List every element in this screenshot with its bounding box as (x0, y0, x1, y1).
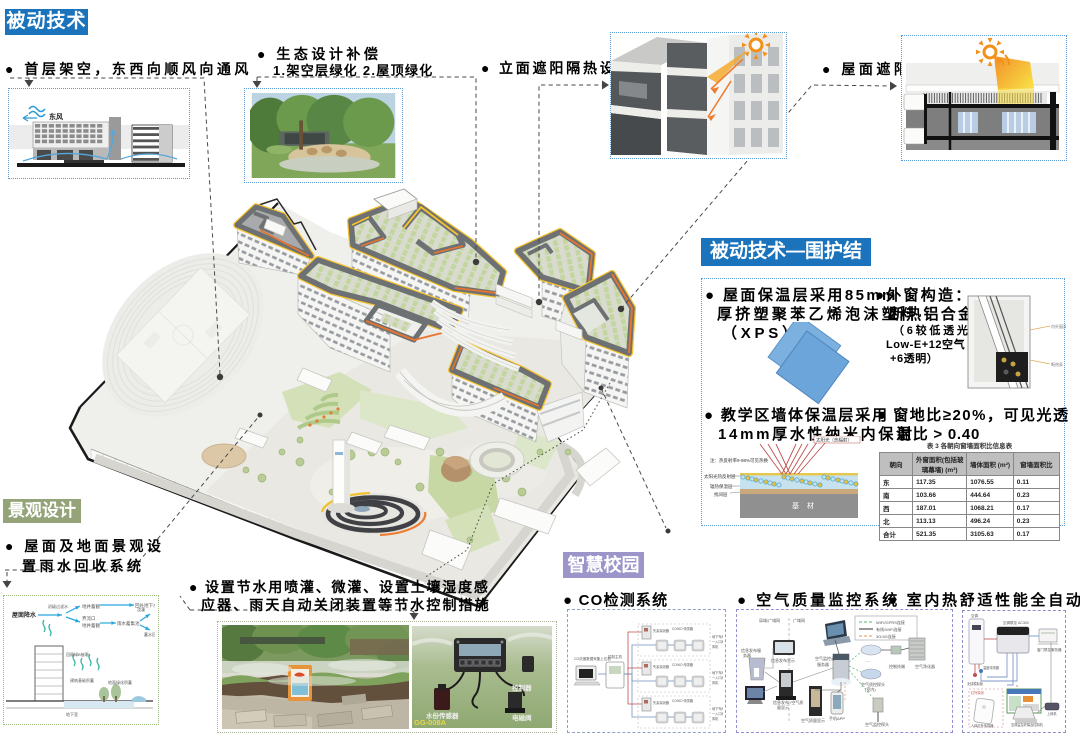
svg-text:上网机: 上网机 (1047, 711, 1057, 716)
svg-text:务器: 务器 (743, 652, 751, 658)
svg-text:CO/NO 传感器: CO/NO 传感器 (672, 698, 694, 703)
svg-text:GG-008A: GG-008A (414, 718, 447, 727)
svg-text:太阳光热反射层: 太阳光热反射层 (704, 473, 736, 480)
svg-text:空调: 空调 (971, 613, 979, 618)
svg-text:窗门联控服务器: 窗门联控服务器 (1037, 647, 1062, 652)
svg-text:地面绿化积蓄: 地面绿化积蓄 (108, 679, 132, 685)
svg-text:控制主机: 控制主机 (608, 654, 622, 659)
svg-text:雨水蓄集池: 雨水蓄集池 (117, 620, 140, 627)
svg-text:浇灌: 浇灌 (137, 606, 145, 612)
svg-text:内外窗双玻: 内外窗双玻 (1051, 323, 1066, 329)
svg-text:地井蓄観: 地井蓄観 (82, 603, 100, 610)
svg-text:断热条: 断热条 (1051, 361, 1063, 367)
svg-text:地下车库: 地下车库 (712, 706, 723, 711)
svg-text:3G/4G连接: 3G/4G连接 (876, 633, 896, 639)
svg-text:风机: 风机 (712, 644, 719, 649)
svg-text:地下室: 地下室 (66, 711, 78, 717)
svg-text:量显示: 量显示 (777, 704, 789, 710)
svg-text:控制终端: 控制终端 (889, 663, 905, 669)
svg-text:蓄水回補: 蓄水回補 (144, 631, 155, 637)
svg-text:东风: 东风 (49, 112, 63, 121)
svg-text:失素探测器: 失素探测器 (653, 628, 670, 633)
svg-text:空调联控 AC300: 空调联控 AC300 (1003, 620, 1029, 625)
svg-text:注：热反射率9-98%可见热换: 注：热反射率9-98%可见热换 (710, 457, 769, 464)
svg-text:回顾绿B被珊: 回顾绿B被珊 (66, 651, 89, 657)
svg-text:失素探测器: 失素探测器 (653, 700, 670, 705)
svg-text:地井蓄観: 地井蓄観 (82, 622, 100, 629)
svg-text:找间层: 找间层 (714, 491, 728, 498)
svg-text:一入口段: 一入口段 (712, 711, 723, 716)
svg-text:弃流口: 弃流口 (82, 615, 96, 622)
svg-text:人体红外传感器: 人体红外传感器 (971, 723, 994, 728)
svg-text:服务器: 服务器 (817, 661, 829, 667)
svg-text:空调监控终端及控制机: 空调监控终端及控制机 (1011, 722, 1044, 727)
svg-text:基 材: 基 材 (792, 501, 817, 510)
svg-text:电磁阀: 电磁阀 (512, 713, 532, 722)
svg-text:风机: 风机 (712, 716, 719, 721)
svg-text:失素探测器: 失素探测器 (653, 664, 670, 669)
svg-text:无线模拟板: 无线模拟板 (967, 681, 984, 686)
svg-text:CO/NO 传感器: CO/NO 传感器 (672, 626, 694, 631)
svg-text:一入口段: 一入口段 (712, 675, 723, 680)
svg-text:辐热保温层: 辐热保温层 (710, 483, 733, 490)
svg-text:地下车库: 地下车库 (712, 670, 723, 675)
svg-text:红外探测: 红外探测 (971, 690, 984, 695)
svg-text:(室内): (室内) (865, 686, 876, 692)
svg-text:控制器: 控制器 (512, 683, 532, 692)
svg-text:温度传感器: 温度传感器 (983, 665, 1000, 670)
svg-text:CO/NO 传感器: CO/NO 传感器 (672, 662, 694, 667)
svg-text:地下车库: 地下车库 (712, 634, 723, 639)
svg-text:空气净化器: 空气净化器 (915, 663, 935, 669)
svg-text:广域网: 广域网 (793, 617, 805, 623)
svg-text:WIFI/GPRS连接: WIFI/GPRS连接 (876, 619, 905, 625)
svg-text:空气监控云: 空气监控云 (815, 655, 835, 661)
svg-text:手机APP: 手机APP (829, 715, 845, 721)
svg-text:太阳光（热辐射）: 太阳光（热辐射） (816, 437, 852, 444)
svg-text:屋面降水: 屋面降水 (12, 611, 37, 619)
svg-text:初级过滤水: 初级过滤水 (48, 603, 68, 609)
svg-text:····: ···· (865, 659, 870, 664)
svg-text:CO浓度数据采集上位机: CO浓度数据采集上位机 (574, 656, 611, 661)
svg-text:局域/广域网: 局域/广域网 (759, 617, 780, 623)
svg-text:一入口段: 一入口段 (712, 639, 723, 644)
svg-text:建筑基础积蓄: 建筑基础积蓄 (70, 677, 94, 683)
svg-text:风机: 风机 (712, 680, 719, 685)
svg-text:空气监控探头: 空气监控探头 (865, 721, 889, 727)
svg-text:空气质量显示: 空气质量显示 (801, 717, 825, 723)
svg-text:信息发布显示: 信息发布显示 (771, 657, 795, 663)
svg-text:有线/WIFI连接: 有线/WIFI连接 (876, 626, 902, 632)
